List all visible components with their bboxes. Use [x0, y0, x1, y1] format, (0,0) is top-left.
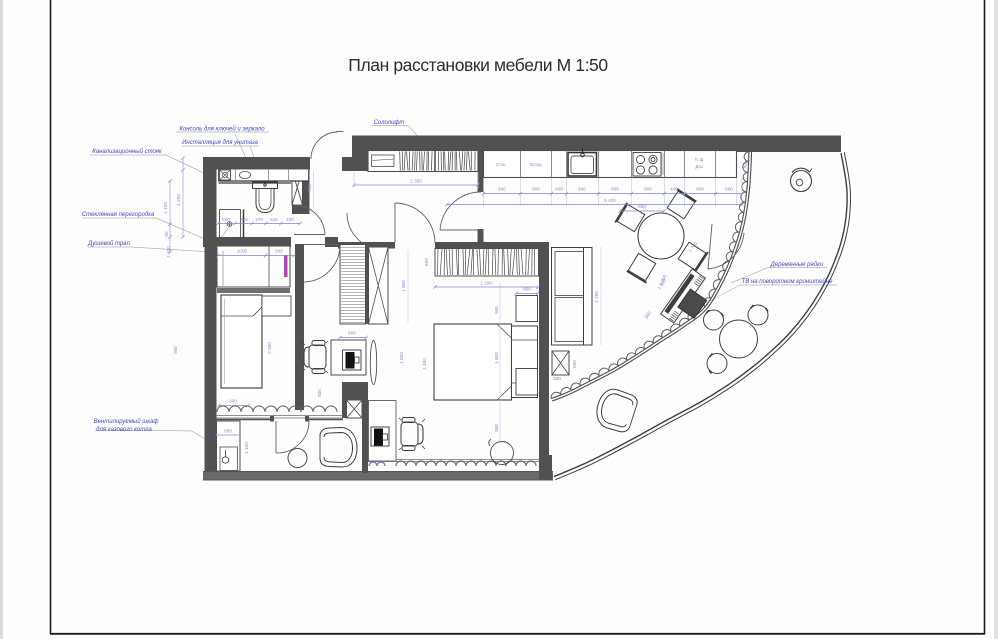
svg-text:600: 600 [532, 187, 540, 192]
svg-text:900: 900 [494, 306, 499, 314]
svg-text:2 200: 2 200 [480, 281, 492, 286]
svg-text:для газового котла: для газового котла [96, 427, 152, 433]
svg-text:Сололифт: Сололифт [374, 120, 405, 126]
svg-text:600: 600 [348, 331, 356, 336]
svg-text:План расстановки мебели М 1:50: План расстановки мебели М 1:50 [348, 55, 608, 75]
svg-text:325: 325 [240, 217, 248, 222]
svg-text:600: 600 [696, 187, 704, 192]
svg-text:Д.ш: Д.ш [695, 164, 703, 169]
svg-text:1 100: 1 100 [244, 442, 249, 454]
svg-text:600: 600 [578, 187, 586, 192]
svg-text:900: 900 [494, 424, 499, 432]
svg-text:600: 600 [498, 187, 506, 192]
svg-text:1 400: 1 400 [422, 358, 427, 370]
svg-text:550: 550 [224, 429, 232, 434]
svg-text:600: 600 [572, 360, 577, 368]
svg-text:600: 600 [611, 187, 619, 192]
svg-text:Инсталляция для унитаза: Инсталляция для унитаза [182, 140, 258, 146]
svg-text:Ст.м.: Ст.м. [496, 162, 506, 167]
svg-text:850: 850 [638, 204, 646, 209]
svg-text:400: 400 [555, 187, 563, 192]
svg-text:2 260: 2 260 [594, 291, 599, 303]
svg-text:500: 500 [222, 217, 230, 222]
svg-text:Вентилируемый шкаф: Вентилируемый шкаф [94, 418, 159, 425]
svg-text:Деревянные рейки: Деревянные рейки [770, 261, 824, 268]
svg-text:500: 500 [275, 249, 283, 254]
svg-text:1 800: 1 800 [401, 280, 406, 292]
svg-text:370: 370 [255, 217, 263, 222]
svg-text:5 400: 5 400 [604, 198, 616, 203]
svg-text:300: 300 [553, 376, 561, 381]
svg-text:230: 230 [286, 217, 294, 222]
svg-text:315: 315 [270, 217, 278, 222]
svg-text:50: 50 [164, 231, 169, 237]
svg-text:1 600: 1 600 [399, 352, 404, 364]
svg-text:600: 600 [644, 187, 652, 192]
svg-text:2 080: 2 080 [267, 342, 272, 354]
svg-text:800: 800 [317, 389, 322, 397]
svg-text:Душевой трап: Душевой трап [87, 240, 130, 247]
svg-text:2 350: 2 350 [410, 179, 422, 184]
svg-text:П. ф: П. ф [695, 157, 704, 162]
svg-text:400: 400 [670, 187, 678, 192]
svg-text:800: 800 [523, 287, 531, 292]
svg-text:Канализационный стояк: Канализационный стояк [92, 148, 163, 155]
svg-text:900: 900 [173, 346, 178, 354]
svg-text:1 250: 1 250 [176, 194, 181, 206]
svg-text:600: 600 [725, 187, 733, 192]
svg-text:ТВ на поворотном кронштейне: ТВ на поворотном кронштейне [742, 278, 833, 285]
svg-text:Холод.: Холод. [529, 162, 542, 167]
svg-text:600: 600 [424, 258, 429, 266]
svg-text:1 600: 1 600 [494, 352, 499, 364]
svg-text:1 150: 1 150 [163, 202, 168, 214]
svg-text:Стеклянная перегородка: Стеклянная перегородка [82, 212, 155, 218]
svg-text:Консоль для ключей и зеркало: Консоль для ключей и зеркало [179, 126, 265, 133]
svg-text:700: 700 [307, 184, 312, 192]
svg-text:800: 800 [229, 399, 237, 404]
svg-text:1 100: 1 100 [166, 246, 171, 258]
svg-text:1000: 1000 [237, 249, 248, 254]
